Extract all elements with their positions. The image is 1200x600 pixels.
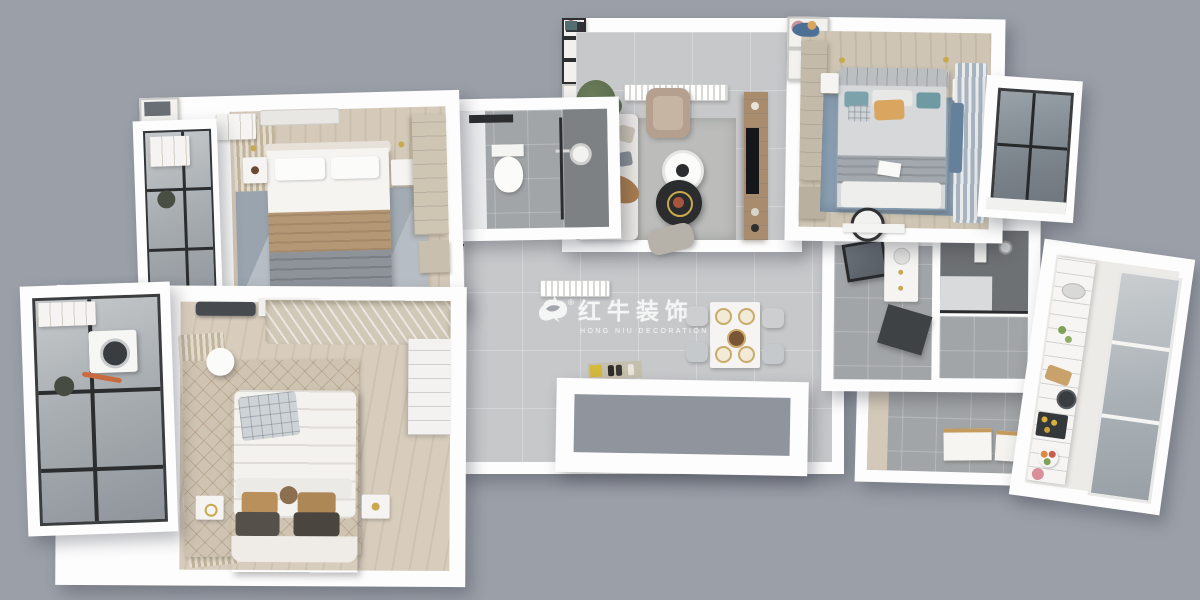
pillow-plaid (848, 105, 870, 121)
shelf-decor (751, 102, 759, 110)
window-mullion (1112, 340, 1170, 352)
shoes (616, 365, 623, 376)
plaid-blanket (238, 391, 301, 441)
place-setting (715, 346, 732, 363)
shoes (608, 365, 615, 376)
orange-hose (82, 371, 122, 383)
pillow-tan (298, 492, 336, 514)
bull-logo-icon (536, 295, 570, 323)
place-setting (738, 308, 755, 325)
tray-food (673, 197, 684, 208)
nightstand-decor (251, 166, 259, 174)
air-conditioner (259, 108, 339, 126)
bath-corridor-floor (939, 316, 1028, 379)
guest-bath-walls (447, 97, 621, 242)
round-bolster (280, 486, 298, 504)
wood-floor-strip (867, 382, 889, 470)
washer-door (100, 338, 131, 369)
white-throw (841, 181, 941, 208)
entry-porch-walls (555, 378, 809, 476)
yellow-mat (590, 365, 603, 378)
balcony-shelf (37, 301, 96, 327)
third-bedroom-walls (784, 16, 1005, 243)
armchair-seat (653, 96, 683, 130)
dining-chair (686, 342, 708, 362)
nightstand (362, 495, 390, 519)
wall-cabinet (216, 113, 257, 140)
gray-blanket (269, 250, 392, 291)
laundry-balcony-walls (20, 281, 179, 536)
bed-pillow (275, 157, 326, 180)
round-side-table (206, 348, 234, 376)
fruit (1043, 458, 1051, 466)
fruit (1040, 450, 1048, 458)
marble-wall-band (459, 111, 487, 229)
registered-mark: ® (568, 298, 574, 307)
watermark-row: ® 红牛装饰 (536, 292, 726, 326)
balcony-cabinet (149, 136, 190, 167)
wash-basin (893, 248, 910, 265)
headboard (231, 536, 357, 563)
tan-blanket (268, 210, 391, 253)
dark-plant (157, 190, 176, 209)
floor-plan-render: ® 红牛装饰 HONG NIU DECORATION (0, 0, 1200, 600)
white-wardrobe (408, 339, 451, 435)
gold-tray (205, 504, 218, 517)
nightstand (196, 496, 224, 520)
bathroom-mirror (842, 238, 890, 282)
brand-name-cn: 红牛装饰 (578, 292, 694, 326)
black-coffee-table (656, 180, 702, 226)
armchair (646, 88, 690, 138)
washing-machine (88, 330, 137, 374)
shower-floor-light (940, 276, 992, 310)
leaning-canvas (943, 428, 991, 460)
air-conditioner (196, 302, 256, 316)
double-bed (835, 67, 949, 211)
nightstand (821, 73, 839, 93)
centerpiece (727, 329, 746, 348)
frame-art (144, 101, 170, 116)
entry-porch-floor (574, 394, 791, 456)
gold-ceiling-light (398, 141, 404, 147)
window-frame-bar (147, 187, 211, 192)
gold-faucet (898, 270, 903, 275)
shoes (628, 364, 635, 375)
doormat (588, 361, 643, 381)
table-decor (676, 164, 689, 177)
pillow-tan (242, 492, 278, 514)
towel-bar (469, 114, 513, 123)
bay-window-walls (977, 75, 1083, 223)
watermark: ® 红牛装饰 HONG NIU DECORATION (536, 292, 726, 335)
window-mullion (1101, 413, 1159, 425)
nightstand (243, 157, 268, 184)
double-bed (267, 148, 393, 291)
stove-item (1041, 416, 1048, 423)
shelf-decor (751, 224, 759, 232)
dining-chair (762, 308, 784, 328)
gold-ceiling-light (943, 57, 949, 63)
gold-ceiling-light (839, 57, 845, 63)
dark-shower-floor (563, 109, 609, 228)
bay-window-glass (990, 88, 1074, 211)
frame-art (807, 21, 816, 30)
stove (1035, 412, 1068, 440)
tv-screen (746, 128, 759, 194)
desk (843, 223, 905, 233)
gold-accessory (898, 286, 903, 291)
window-frame-bar (149, 247, 213, 252)
dressing-table (419, 240, 450, 273)
blue-drape (949, 103, 964, 173)
pillow-orange (874, 99, 905, 120)
balcony-glazing (32, 294, 168, 526)
toilet-bowl (494, 156, 524, 193)
gold-lamp (372, 503, 380, 511)
place-setting (738, 346, 755, 363)
frame-art (565, 21, 577, 30)
stove-item (1044, 426, 1051, 433)
bathroom-vanity (884, 240, 919, 302)
shower-glass-screen (940, 310, 1028, 314)
fruit (1048, 450, 1056, 458)
bed-pillow (331, 156, 380, 179)
dining-chair (762, 344, 784, 364)
brand-name-en: HONG NIU DECORATION (580, 328, 726, 335)
window-frame-bar (41, 465, 163, 473)
toilet-tank (492, 144, 524, 157)
window-mullion (1025, 93, 1036, 205)
pillow-teal (916, 92, 940, 108)
pillow-dark (235, 512, 279, 536)
stove-item (1051, 419, 1058, 426)
wardrobe (412, 114, 449, 235)
double-bed (231, 390, 358, 573)
pillow-dark (293, 512, 339, 536)
tv-media-wall (744, 92, 768, 240)
shelf-decor (751, 208, 759, 216)
